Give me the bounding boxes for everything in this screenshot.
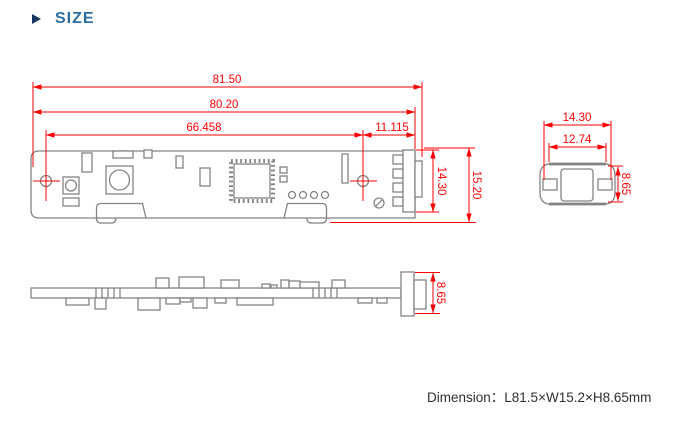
side-components-top bbox=[156, 277, 345, 288]
housing-slot-left bbox=[543, 179, 557, 190]
housing-slot-right bbox=[598, 179, 612, 190]
dim-overall-length-label: 81.50 bbox=[213, 74, 242, 86]
dimension-summary-label: Dimension： bbox=[427, 390, 504, 405]
dim-side-height-label: 8.65 bbox=[434, 282, 446, 304]
size-spec-page: SIZE bbox=[0, 0, 680, 425]
dim-hole-to-edge: 11.115 bbox=[363, 122, 415, 135]
dim-hole-to-edge-label: 11.115 bbox=[375, 122, 408, 134]
ic-chip bbox=[234, 164, 270, 198]
end-view bbox=[540, 164, 615, 204]
board-edge bbox=[31, 288, 401, 298]
dim-board-length: 80.20 bbox=[33, 99, 415, 149]
dim-end-inner-width-label: 12.74 bbox=[563, 134, 592, 146]
dim-board-length-label: 80.20 bbox=[210, 99, 239, 111]
dimension-drawing: 81.50 80.20 66.458 11.115 14.30 bbox=[0, 0, 680, 425]
dim-hole-spacing-label: 66.458 bbox=[186, 122, 221, 134]
dim-overall-width-label: 15.20 bbox=[470, 171, 482, 200]
dimension-summary-value: L81.5×W15.2×H8.65mm bbox=[504, 390, 651, 405]
dim-end-outer-width-label: 14.30 bbox=[563, 112, 592, 124]
dim-end-height-label: 8.65 bbox=[619, 173, 631, 195]
dimension-summary: Dimension：L81.5×W15.2×H8.65mm bbox=[427, 386, 651, 406]
housing-core bbox=[561, 169, 593, 201]
side-components-bottom bbox=[66, 298, 387, 310]
side-view bbox=[31, 272, 426, 316]
dim-end-inner-width: 12.74 bbox=[549, 134, 606, 162]
dim-connector-height-label: 14.30 bbox=[435, 167, 447, 196]
side-connector bbox=[401, 272, 426, 316]
